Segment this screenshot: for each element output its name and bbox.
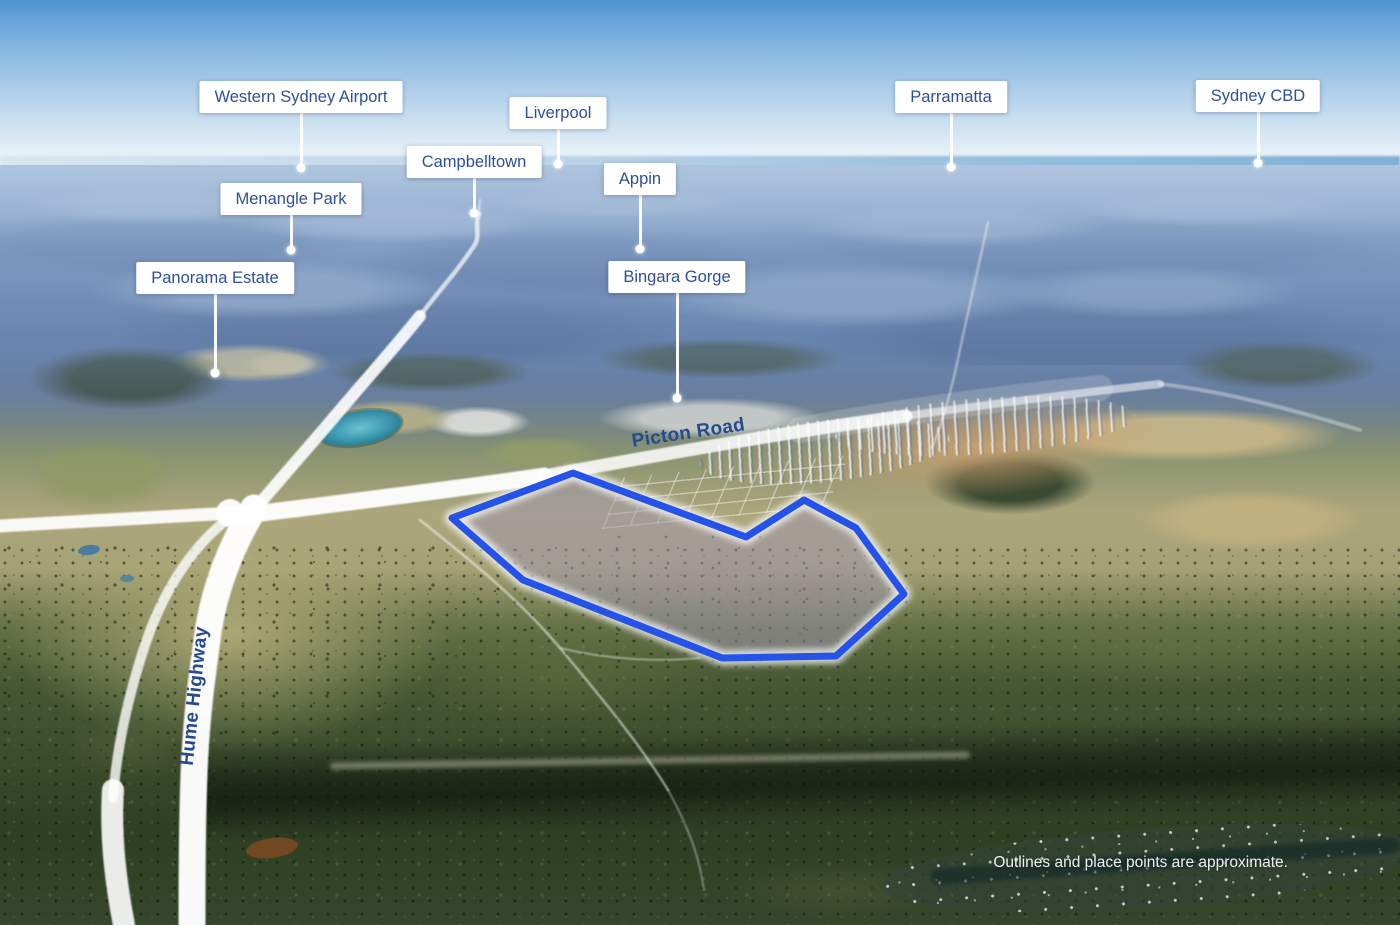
aerial-location-map: Picton Road Hume Highway Western Sydney … bbox=[0, 0, 1400, 925]
farm-track-3 bbox=[668, 790, 704, 890]
place-point-panorama-estate bbox=[211, 369, 220, 378]
leader-line-panorama-estate bbox=[214, 293, 217, 373]
roads-and-site-overlay bbox=[0, 0, 1400, 925]
place-label-western-sydney-airport: Western Sydney Airport bbox=[199, 81, 402, 113]
place-label-liverpool: Liverpool bbox=[510, 97, 607, 129]
place-point-campbelltown bbox=[470, 209, 479, 218]
place-label-sydney-cbd: Sydney CBD bbox=[1196, 80, 1320, 112]
leader-line-appin bbox=[639, 194, 642, 249]
road-band-hume-mid bbox=[256, 316, 420, 508]
road-band-hume-distant bbox=[479, 200, 480, 212]
place-label-bingara-gorge: Bingara Gorge bbox=[608, 261, 745, 293]
road-band-hume-upper bbox=[420, 214, 479, 316]
place-point-sydney-cbd bbox=[1254, 159, 1263, 168]
place-point-menangle-park bbox=[287, 246, 296, 255]
site-boundary-group bbox=[452, 473, 904, 658]
farm-track-2 bbox=[560, 648, 700, 660]
place-point-liverpool bbox=[554, 160, 563, 169]
distant-track-right bbox=[1160, 384, 1360, 430]
place-label-campbelltown: Campbelltown bbox=[407, 146, 542, 178]
place-label-panorama-estate: Panorama Estate bbox=[136, 262, 294, 294]
place-label-menangle-park: Menangle Park bbox=[221, 183, 362, 215]
place-point-parramatta bbox=[947, 163, 956, 172]
leader-line-western-sydney-airport bbox=[300, 112, 303, 168]
place-label-parramatta: Parramatta bbox=[895, 81, 1007, 113]
leader-line-parramatta bbox=[950, 112, 953, 167]
disclaimer-text: Outlines and place points are approximat… bbox=[993, 854, 1288, 872]
road-band-southwest-lower bbox=[112, 790, 124, 925]
road-band-west bbox=[0, 513, 236, 526]
leader-line-bingara-gorge bbox=[676, 292, 679, 398]
place-point-western-sydney-airport bbox=[297, 164, 306, 173]
place-label-appin: Appin bbox=[604, 163, 676, 195]
place-point-appin bbox=[636, 245, 645, 254]
leader-line-sydney-cbd bbox=[1257, 111, 1260, 163]
place-point-bingara-gorge bbox=[673, 394, 682, 403]
